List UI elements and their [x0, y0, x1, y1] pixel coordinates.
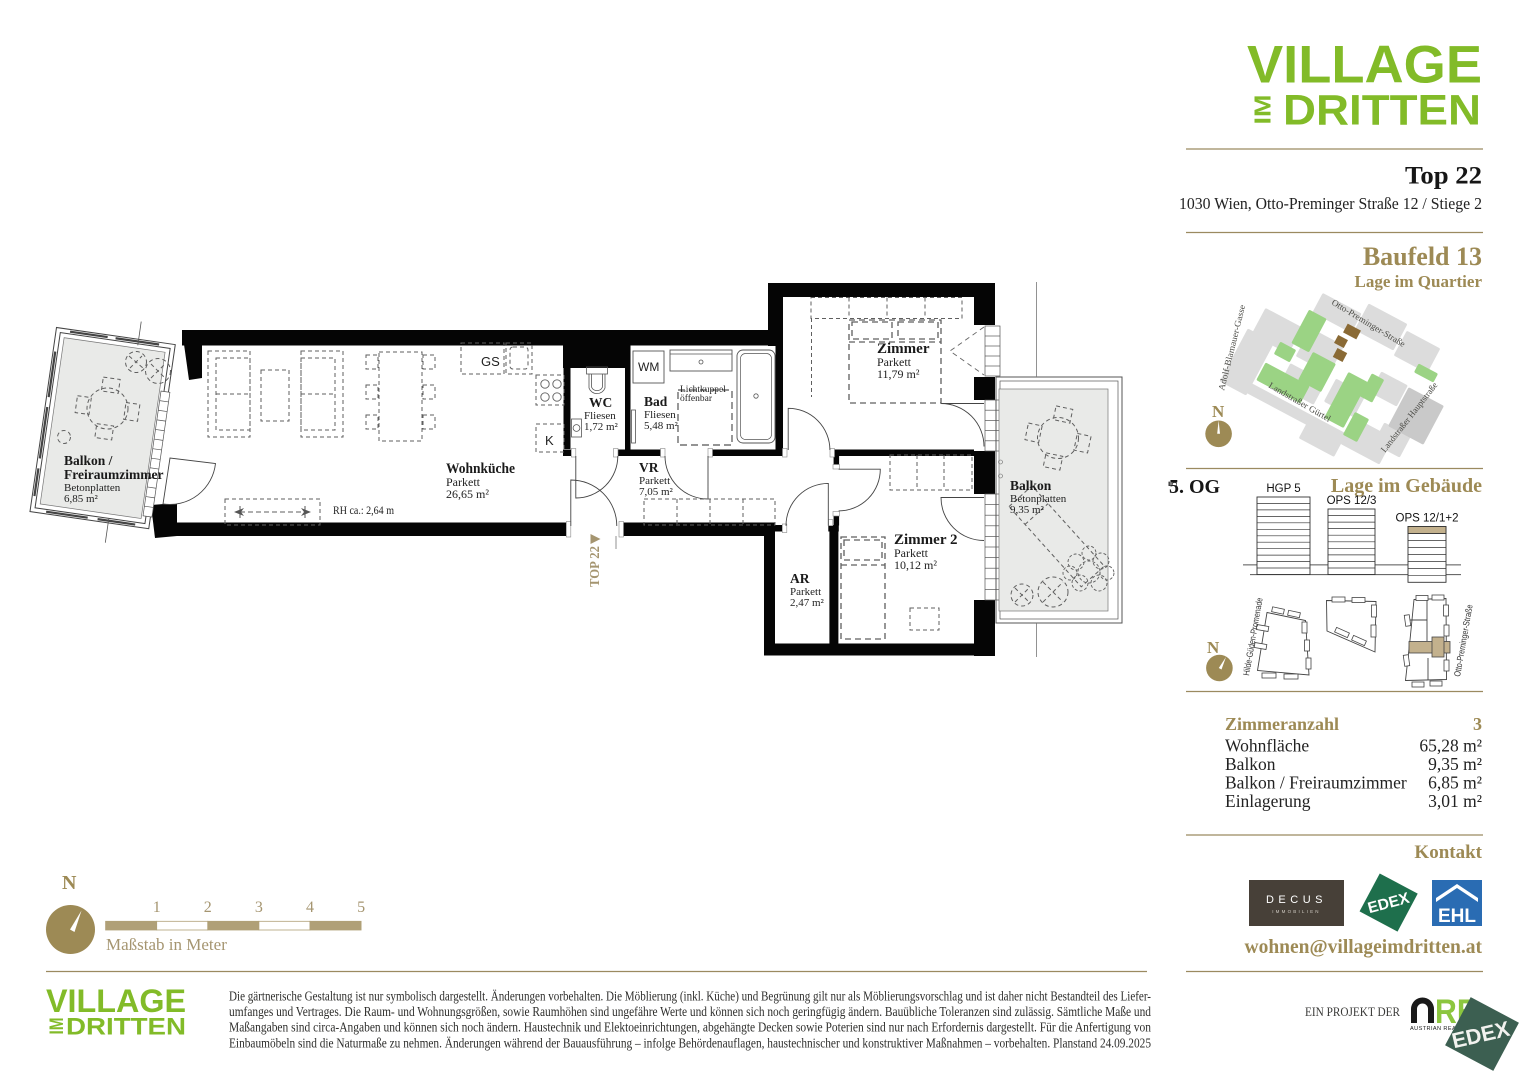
svg-text:DRITTEN: DRITTEN — [66, 1014, 186, 1041]
svg-text:5: 5 — [357, 899, 365, 916]
svg-text:IMMOBILIEN: IMMOBILIEN — [1272, 909, 1321, 914]
svg-text:6,85 m²: 6,85 m² — [64, 493, 99, 505]
svg-text:RH ca.: 2,64 m: RH ca.: 2,64 m — [333, 505, 394, 517]
svg-text:GS: GS — [481, 354, 500, 369]
svg-text:öffenbar: öffenbar — [680, 393, 713, 404]
svg-text:5. OG: 5. OG — [1169, 476, 1221, 498]
svg-text:DRITTEN: DRITTEN — [1283, 87, 1481, 135]
svg-text:Baufeld 13: Baufeld 13 — [1363, 242, 1482, 271]
svg-text:OPS 12/1+2: OPS 12/1+2 — [1396, 513, 1459, 525]
svg-text:1,72 m²: 1,72 m² — [584, 421, 619, 433]
svg-text:Balkon: Balkon — [1225, 754, 1276, 774]
svg-text:6,85 m²: 6,85 m² — [1428, 773, 1482, 793]
svg-text:Maßangaben sind circa-Angaben: Maßangaben sind circa-Angaben und können… — [229, 1020, 1151, 1035]
svg-text:Wohnfläche: Wohnfläche — [1225, 736, 1309, 756]
svg-text:DECUS: DECUS — [1266, 894, 1327, 906]
svg-text:Balkon: Balkon — [1010, 478, 1052, 493]
svg-text:Zimmeranzahl: Zimmeranzahl — [1225, 714, 1339, 734]
svg-text:TOP 22: TOP 22 — [588, 546, 603, 587]
svg-text:VR: VR — [639, 460, 659, 475]
svg-text:EHL: EHL — [1438, 906, 1476, 927]
svg-text:Einlagerung: Einlagerung — [1225, 791, 1311, 811]
svg-text:OPS 12/3: OPS 12/3 — [1327, 495, 1377, 507]
svg-text:65,28 m²: 65,28 m² — [1419, 736, 1482, 756]
svg-text:26,65 m²: 26,65 m² — [446, 487, 489, 501]
svg-text:9,35 m²: 9,35 m² — [1010, 504, 1045, 516]
svg-text:1: 1 — [153, 899, 161, 916]
svg-text:Freiraumzimmer: Freiraumzimmer — [64, 467, 163, 482]
svg-text:IM: IM — [47, 1018, 68, 1035]
svg-text:Kontakt: Kontakt — [1414, 842, 1482, 863]
svg-text:5,48 m²: 5,48 m² — [644, 420, 679, 432]
svg-text:umfanges und Vertrages. Die Ra: umfanges und Vertrages. Die Raum- und Wo… — [229, 1004, 1151, 1019]
svg-text:4: 4 — [306, 899, 314, 916]
svg-text:N: N — [1212, 402, 1225, 421]
svg-text:AR: AR — [790, 571, 810, 586]
svg-text:Maßstab in Meter: Maßstab in Meter — [106, 935, 227, 954]
svg-text:3: 3 — [1473, 714, 1482, 734]
svg-text:Bad: Bad — [644, 394, 668, 409]
svg-text:wohnen@villageimdritten.at: wohnen@villageimdritten.at — [1244, 937, 1482, 958]
svg-text:2,47 m²: 2,47 m² — [790, 597, 825, 609]
svg-text:K: K — [545, 433, 554, 448]
svg-text:Top 22: Top 22 — [1405, 163, 1482, 190]
svg-text:3: 3 — [255, 899, 263, 916]
svg-text:Die gärtnerische Gestaltung is: Die gärtnerische Gestaltung ist nur symb… — [229, 989, 1151, 1004]
svg-text:N: N — [62, 872, 77, 894]
svg-text:EIN PROJEKT DER: EIN PROJEKT DER — [1305, 1004, 1400, 1019]
svg-text:Otto-Preminger-Straße: Otto-Preminger-Straße — [1452, 604, 1475, 678]
svg-text:HGP 5: HGP 5 — [1266, 483, 1300, 495]
svg-text:Einbaumöbeln sind die Naturmaß: Einbaumöbeln sind die Naturmaße zu nehme… — [229, 1035, 1151, 1050]
svg-text:3,01 m²: 3,01 m² — [1428, 791, 1482, 811]
svg-text:10,12 m²: 10,12 m² — [894, 558, 937, 572]
svg-text:7,05 m²: 7,05 m² — [639, 486, 674, 498]
svg-text:Balkon / Freiraumzimmer: Balkon / Freiraumzimmer — [1225, 773, 1407, 793]
svg-text:Lage im Gebäude: Lage im Gebäude — [1331, 475, 1482, 497]
svg-text:WC: WC — [589, 395, 612, 410]
svg-text:WM: WM — [638, 360, 659, 374]
svg-text:N: N — [1207, 638, 1220, 657]
svg-text:1030 Wien, Otto-Preminger Stra: 1030 Wien, Otto-Preminger Straße 12 / St… — [1179, 194, 1482, 213]
svg-text:2: 2 — [204, 899, 212, 916]
svg-text:IM: IM — [1250, 95, 1276, 125]
svg-text:9,35 m²: 9,35 m² — [1428, 754, 1482, 774]
svg-text:Balkon /: Balkon / — [64, 453, 113, 468]
svg-text:Lage im Quartier: Lage im Quartier — [1355, 272, 1483, 291]
svg-text:11,79 m²: 11,79 m² — [877, 367, 920, 381]
